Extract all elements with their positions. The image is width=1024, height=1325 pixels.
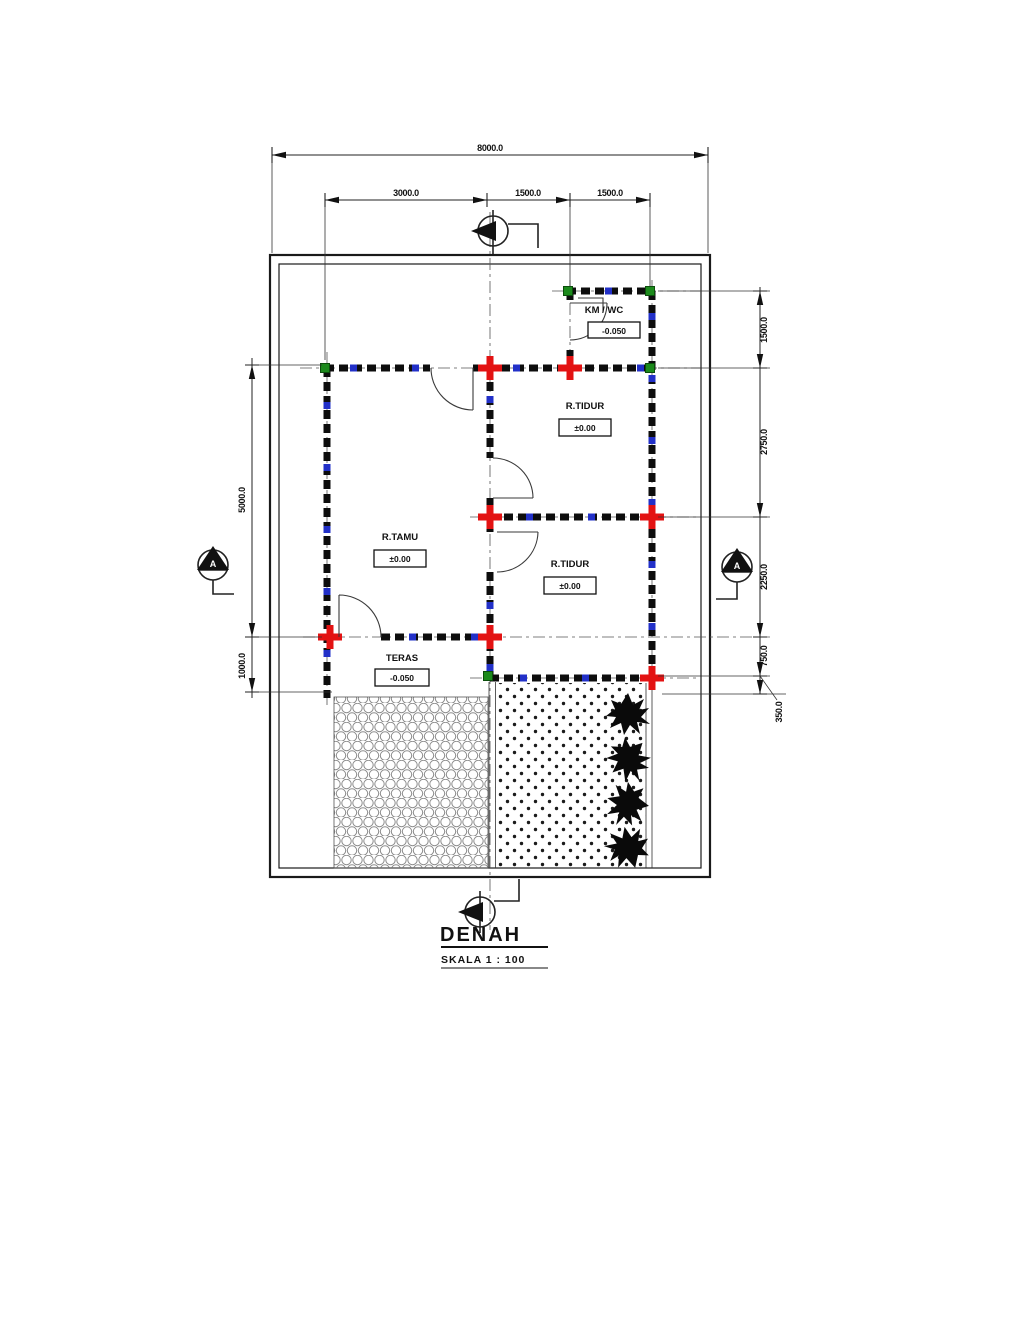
dim-right-seg-2: 2750.0 [759, 429, 769, 455]
section-marker-left: A [197, 546, 234, 594]
section-letter-right: A [734, 561, 741, 571]
garden-area [489, 682, 659, 875]
dimension-right: 1500.0 2750.0 2250.0 750.0 350.0 [658, 287, 786, 723]
dim-right-seg-1: 1500.0 [759, 317, 769, 343]
room-bedroom2: R.TIDUR ±0.00 [544, 559, 596, 594]
room-teras: TERAS -0.050 [375, 653, 429, 686]
floor-plan-sheet: 8000.0 3000.0 1500.0 1500.0 1500.0 2750.… [0, 0, 1024, 1325]
room-livingroom-name: R.TAMU [382, 532, 418, 543]
section-letter-left: A [210, 559, 217, 569]
room-kmwc-name: KM / WC [585, 305, 624, 316]
floor-plan-drawing: 8000.0 3000.0 1500.0 1500.0 1500.0 2750.… [0, 0, 1024, 1325]
drawing-scale: SKALA 1 : 100 [441, 954, 525, 966]
dim-top-seg-1: 3000.0 [393, 188, 419, 198]
dim-right-seg-4: 750.0 [759, 645, 769, 666]
dim-top-seg-2: 1500.0 [515, 188, 541, 198]
dim-top-seg-3: 1500.0 [597, 188, 623, 198]
room-livingroom-level: ±0.00 [389, 554, 410, 564]
room-labels: KM / WC -0.050 R.TIDUR ±0.00 R.TAMU ±0.0… [374, 305, 640, 686]
room-teras-level: -0.050 [390, 673, 414, 683]
room-teras-name: TERAS [386, 653, 418, 664]
room-livingroom: R.TAMU ±0.00 [374, 532, 426, 567]
room-bedroom1-level: ±0.00 [574, 423, 595, 433]
room-bedroom2-level: ±0.00 [559, 581, 580, 591]
room-kmwc: KM / WC -0.050 [585, 305, 640, 338]
column-markers [318, 287, 664, 691]
dim-left-seg-1: 5000.0 [237, 487, 247, 513]
dimension-left: 5000.0 1000.0 [237, 358, 332, 698]
drawing-title: DENAH [440, 924, 521, 946]
room-bedroom1-name: R.TIDUR [566, 401, 605, 412]
room-kmwc-level: -0.050 [602, 326, 626, 336]
room-bedroom2-name: R.TIDUR [551, 559, 590, 570]
dim-right-seg-5: 350.0 [774, 701, 784, 722]
section-marker-right: A [716, 548, 753, 599]
section-marker-top [471, 210, 538, 254]
room-bedroom1: R.TIDUR ±0.00 [559, 401, 611, 436]
dim-top-total: 8000.0 [477, 143, 503, 153]
dim-right-seg-3: 2250.0 [759, 564, 769, 590]
dim-left-seg-2: 1000.0 [237, 653, 247, 679]
title-block: DENAH SKALA 1 : 100 [440, 924, 548, 968]
paving-area [334, 697, 488, 868]
